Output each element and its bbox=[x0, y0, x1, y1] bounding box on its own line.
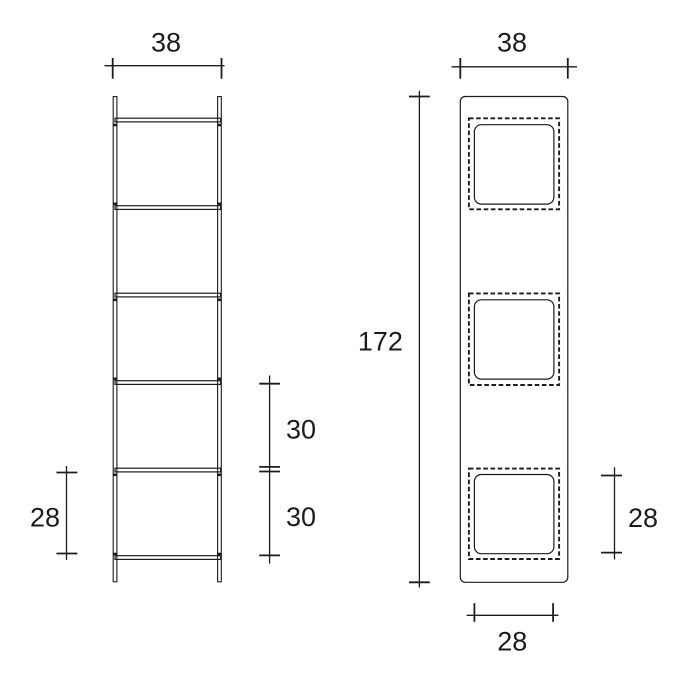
svg-text:28: 28 bbox=[30, 503, 60, 533]
svg-text:30: 30 bbox=[286, 502, 316, 532]
svg-text:28: 28 bbox=[497, 626, 527, 656]
svg-text:28: 28 bbox=[628, 503, 658, 533]
svg-text:172: 172 bbox=[358, 327, 403, 357]
svg-text:38: 38 bbox=[151, 28, 181, 58]
svg-text:30: 30 bbox=[286, 415, 316, 445]
svg-text:38: 38 bbox=[497, 28, 527, 58]
